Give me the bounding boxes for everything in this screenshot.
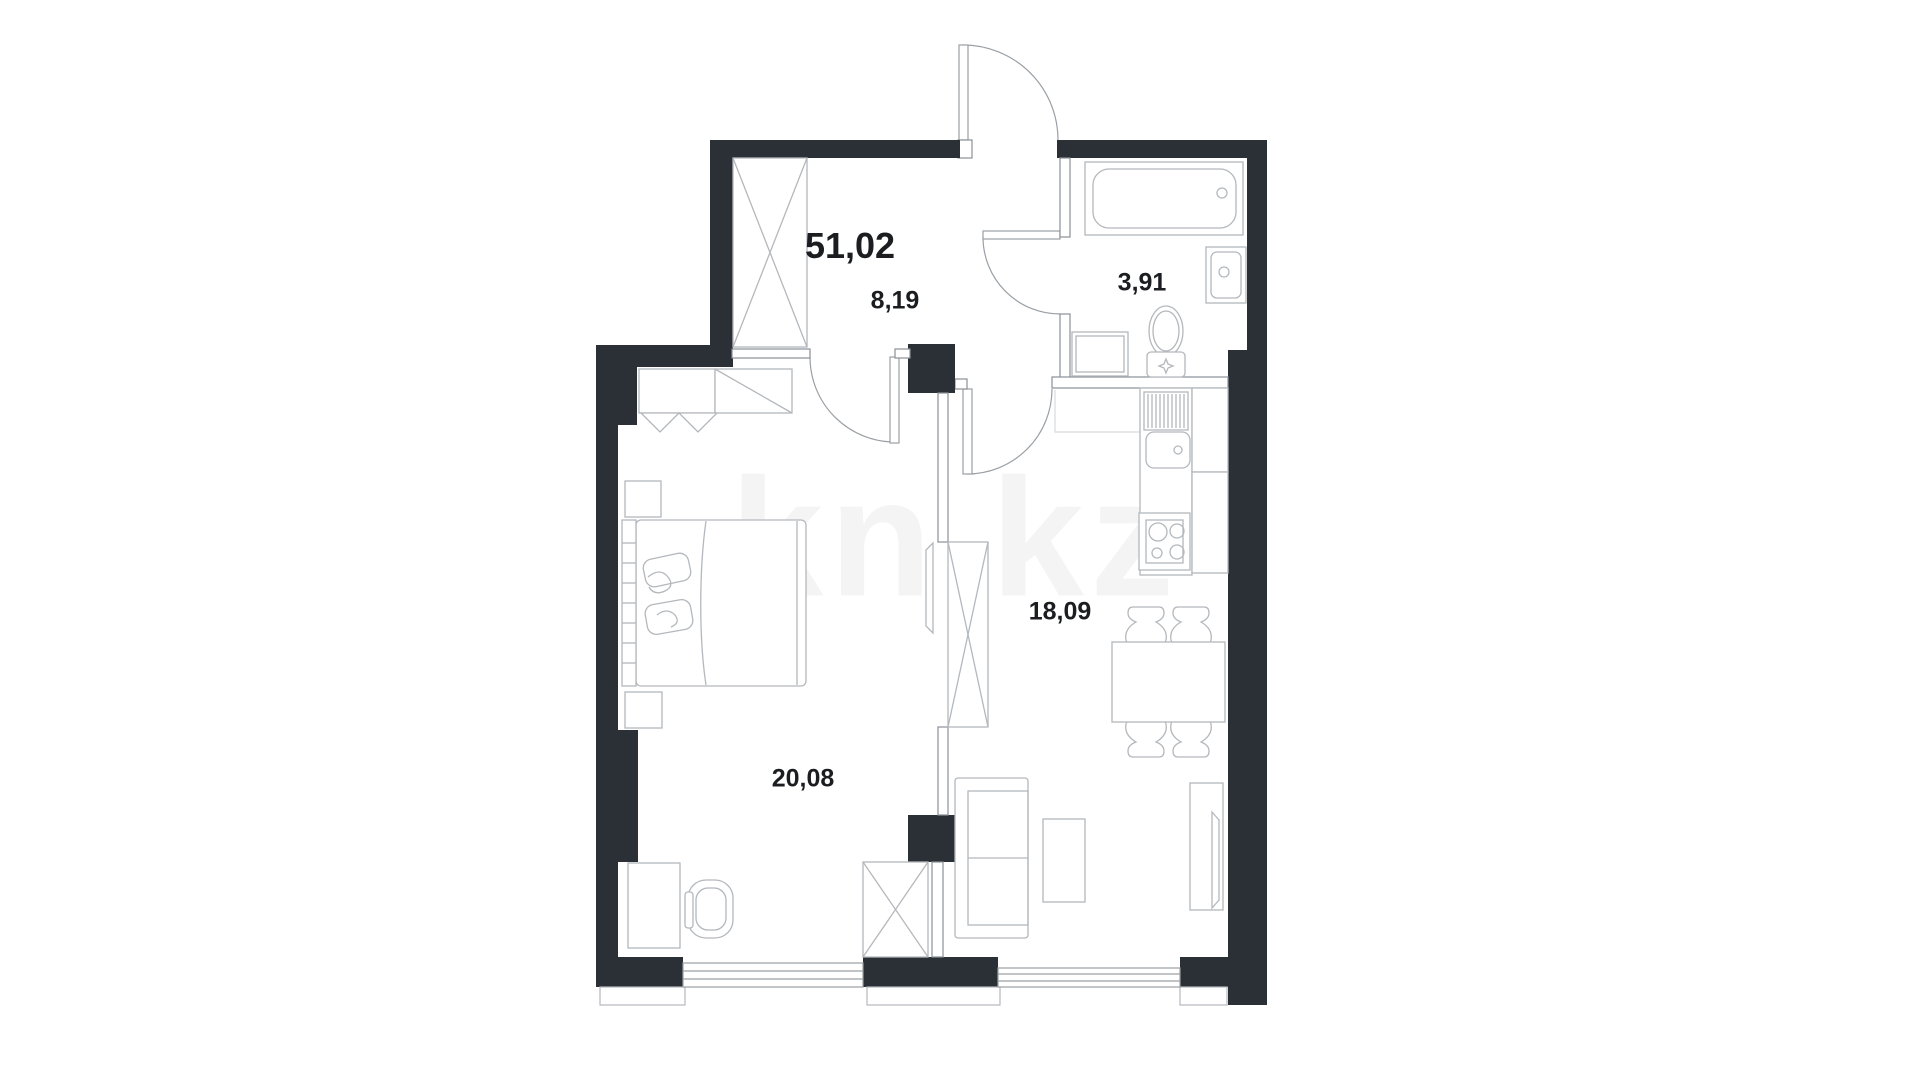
wall-bottom-middle-pier bbox=[863, 957, 998, 987]
bed bbox=[622, 520, 806, 686]
wall-left-pier-lower bbox=[600, 730, 638, 862]
washing-machine bbox=[1072, 332, 1128, 376]
tv-living bbox=[1212, 812, 1219, 908]
wall-right-lower bbox=[1228, 350, 1267, 1005]
wall-bathroom-left-lower bbox=[1060, 314, 1070, 379]
wall-bottom-right bbox=[1180, 957, 1228, 987]
floor-plan-page: kn.kz bbox=[0, 0, 1920, 1080]
wall-left-pier-upper bbox=[596, 345, 637, 425]
kitchen-zone-line bbox=[1055, 390, 1140, 432]
tv-stand bbox=[1190, 783, 1223, 910]
bedroom-furniture bbox=[622, 369, 933, 957]
wall-left bbox=[596, 345, 618, 987]
nightstand-top bbox=[625, 481, 661, 517]
coffee-table bbox=[1043, 819, 1085, 902]
toilet bbox=[1147, 306, 1185, 377]
kitchen-fixtures bbox=[1139, 388, 1228, 575]
wall-top-left bbox=[710, 140, 960, 158]
bathroom-area-label: 3,91 bbox=[1118, 269, 1167, 298]
hallway-wardrobe bbox=[733, 158, 807, 347]
window-sill-left bbox=[600, 987, 685, 1005]
hanger-icon bbox=[641, 413, 679, 432]
living-door-jamb bbox=[955, 379, 967, 389]
bedroom-area-label: 20,08 bbox=[772, 765, 835, 794]
bathroom-sink bbox=[1206, 247, 1246, 303]
wall-bathroom-kitchen-divider bbox=[1052, 377, 1228, 388]
window-sill-middle bbox=[867, 987, 1000, 1005]
wall-column-upper bbox=[908, 344, 955, 393]
dining-table bbox=[1112, 642, 1225, 722]
window-sill-right bbox=[1180, 987, 1227, 1005]
wall-partition-middle bbox=[938, 727, 948, 815]
entrance-door-jamb bbox=[958, 140, 972, 158]
wall-partition-upper bbox=[938, 393, 948, 542]
nightstand-bottom bbox=[625, 692, 662, 728]
bathroom-door bbox=[983, 231, 1060, 314]
total-area-label: 51,02 bbox=[805, 225, 895, 267]
bathtub bbox=[1085, 162, 1243, 235]
fridge bbox=[1192, 388, 1228, 573]
tv-bedroom bbox=[926, 543, 933, 633]
wall-hallway-left bbox=[710, 140, 733, 367]
wall-bedroom-top bbox=[732, 349, 810, 358]
living-window bbox=[998, 968, 1180, 987]
tall-cabinet bbox=[948, 542, 988, 727]
wall-column-lower bbox=[908, 815, 955, 862]
kitchen-living-area-label: 18,09 bbox=[1029, 598, 1092, 627]
wall-partition-lower bbox=[932, 862, 943, 957]
bedroom-door bbox=[810, 357, 899, 443]
wall-bedroom-top-jamb bbox=[895, 349, 910, 358]
sofa bbox=[955, 778, 1028, 938]
bedroom-storage bbox=[863, 862, 928, 957]
wall-top-right bbox=[1057, 140, 1267, 158]
bedroom-wardrobe bbox=[639, 369, 792, 432]
stove bbox=[1139, 513, 1190, 570]
wall-bathroom-left-upper bbox=[1060, 158, 1070, 237]
hanger-icon bbox=[679, 413, 717, 432]
desk-chair bbox=[685, 880, 733, 938]
wall-bottom-left-corner bbox=[596, 957, 683, 987]
floor-plan-drawing bbox=[0, 0, 1920, 1080]
entrance-door bbox=[958, 45, 1058, 158]
living-room-door bbox=[955, 379, 1052, 474]
hallway-area-label: 8,19 bbox=[871, 287, 920, 316]
wall-right-upper bbox=[1247, 140, 1267, 352]
bedroom-window bbox=[683, 963, 863, 987]
desk bbox=[628, 863, 680, 948]
